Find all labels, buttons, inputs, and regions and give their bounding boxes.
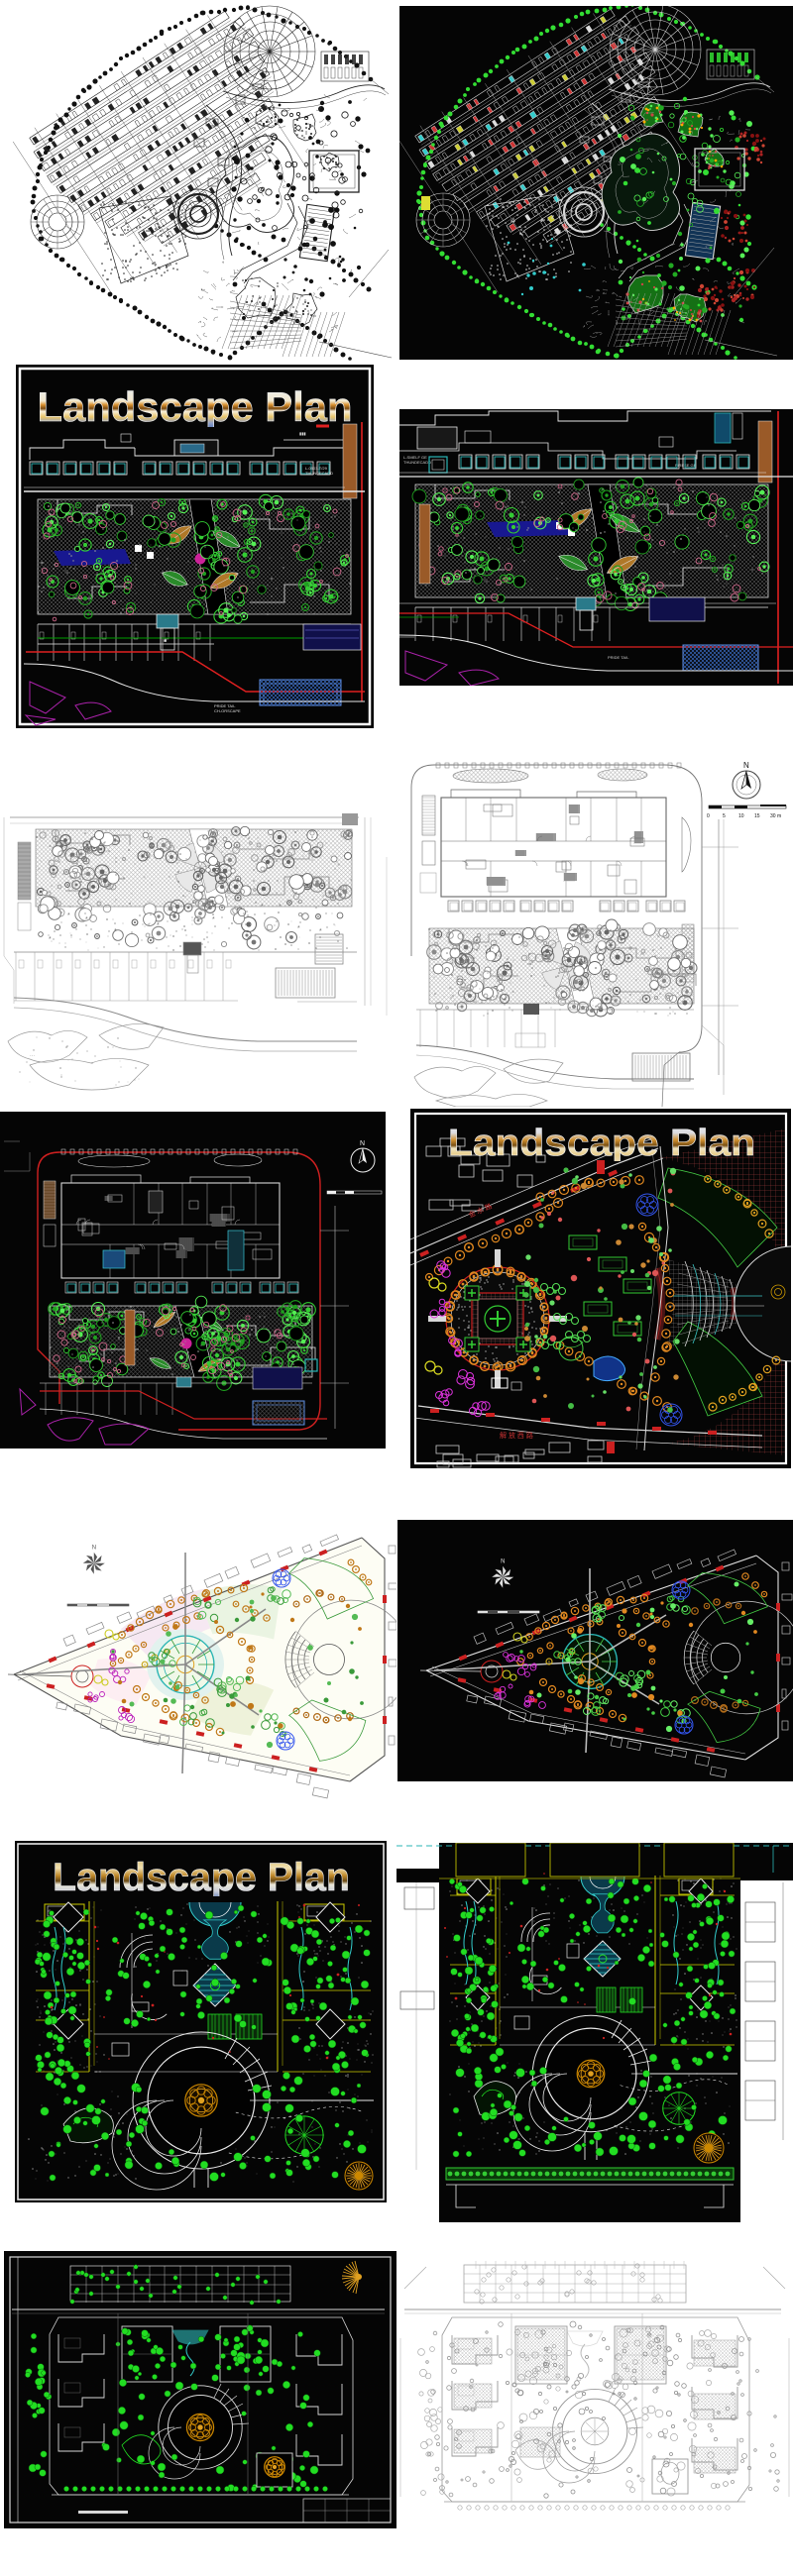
svg-text:*: * (157, 922, 160, 929)
svg-text:5: 5 (723, 813, 726, 819)
svg-text:FIRESE GE: FIRESE GE (675, 463, 697, 468)
svg-text:CH-ORSCAPE: CH-ORSCAPE (214, 708, 241, 713)
svg-text:30 m: 30 m (770, 813, 781, 819)
svg-text:THUNDECADD: THUNDECADD (305, 471, 333, 476)
svg-text:*: * (212, 916, 215, 923)
svg-text:▮▮▮: ▮▮▮ (299, 431, 306, 436)
svg-text:■: ■ (164, 638, 167, 644)
svg-text:*: * (114, 928, 117, 935)
svg-text:10: 10 (738, 813, 744, 819)
svg-text:解 放 西 路: 解 放 西 路 (500, 1431, 533, 1440)
svg-text:THUNDECADD: THUNDECADD (403, 460, 431, 465)
svg-text:PRIDE TAIL: PRIDE TAIL (608, 655, 629, 660)
svg-text:*: * (297, 925, 300, 932)
svg-text:*: * (85, 916, 88, 923)
svg-text:···: ··· (30, 1053, 35, 1059)
svg-text:*: * (67, 912, 70, 919)
svg-text:15: 15 (754, 813, 760, 819)
svg-text:N: N (360, 1140, 365, 1147)
svg-text:*: * (261, 904, 264, 911)
svg-text:*: * (279, 904, 282, 911)
svg-text:*: * (49, 936, 52, 943)
svg-text:0: 0 (707, 813, 710, 819)
svg-text:Landscape Plan: Landscape Plan (38, 383, 353, 427)
svg-text:N: N (743, 761, 749, 770)
